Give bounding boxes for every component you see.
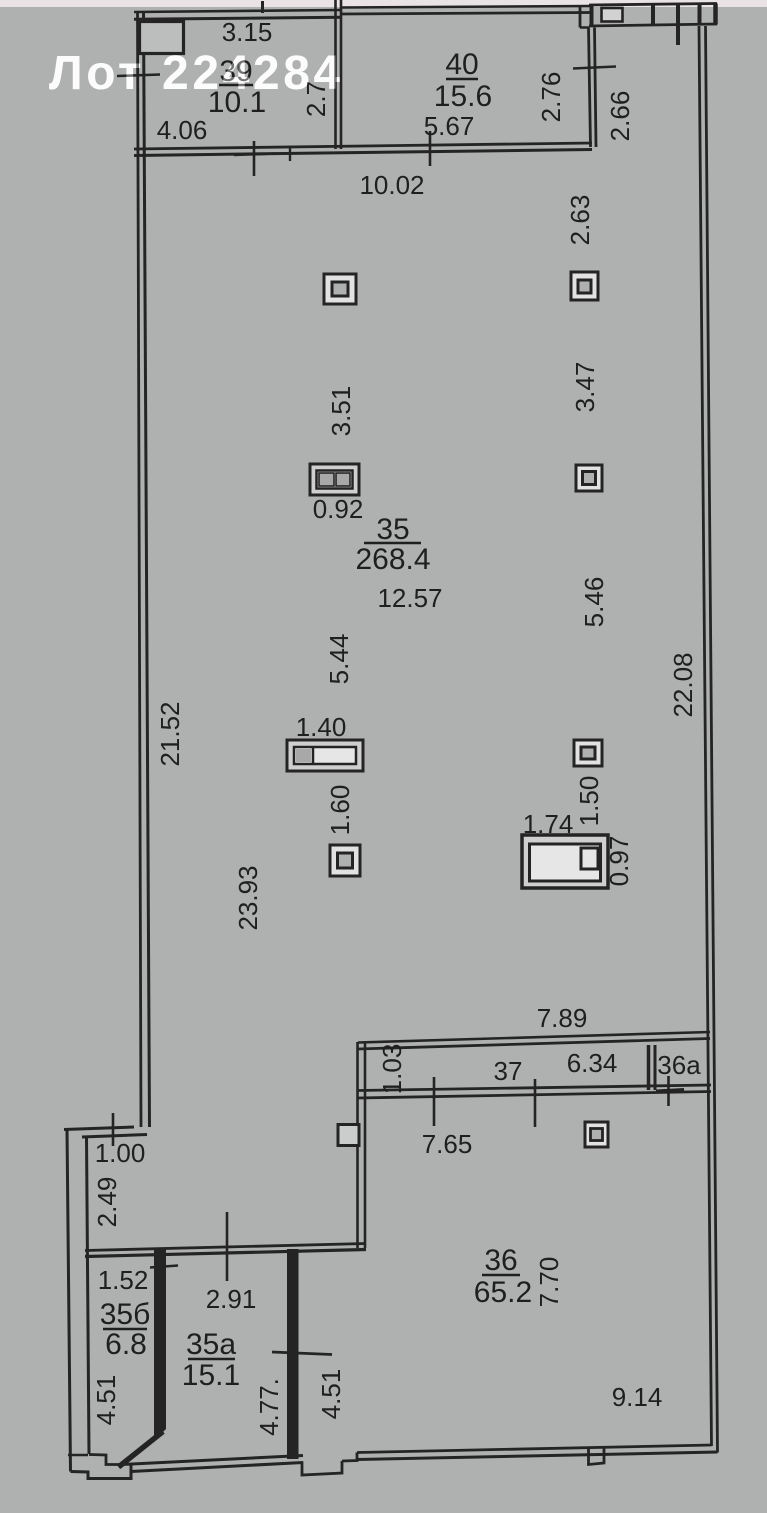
svg-text:2.66: 2.66: [605, 91, 635, 142]
svg-text:4.51: 4.51: [316, 1369, 346, 1420]
svg-text:5.44: 5.44: [324, 634, 354, 685]
svg-text:1.50: 1.50: [574, 776, 604, 827]
svg-text:4.06: 4.06: [157, 115, 208, 145]
svg-text:3.47: 3.47: [570, 362, 600, 413]
svg-text:1.00: 1.00: [95, 1138, 146, 1168]
svg-text:23.93: 23.93: [233, 865, 263, 930]
svg-text:Лот 224284: Лот 224284: [49, 47, 344, 100]
svg-text:3.51: 3.51: [326, 386, 356, 437]
svg-text:268.4: 268.4: [355, 543, 430, 576]
svg-text:37: 37: [494, 1056, 523, 1086]
svg-text:15.1: 15.1: [182, 1359, 240, 1392]
svg-text:35б: 35б: [100, 1298, 151, 1331]
svg-text:4.51: 4.51: [91, 1375, 121, 1426]
svg-text:35а: 35а: [186, 1328, 236, 1361]
svg-text:10.02: 10.02: [359, 170, 424, 200]
svg-text:36: 36: [484, 1244, 517, 1277]
svg-text:6.34: 6.34: [567, 1048, 618, 1078]
svg-text:65.2: 65.2: [474, 1276, 532, 1309]
svg-text:7.65: 7.65: [422, 1129, 473, 1159]
svg-text:22.08: 22.08: [668, 652, 698, 717]
svg-text:5.46: 5.46: [579, 577, 609, 628]
svg-text:1.60: 1.60: [325, 785, 355, 836]
svg-text:2.63: 2.63: [565, 195, 595, 246]
svg-text:15.6: 15.6: [434, 80, 492, 113]
svg-text:5.67: 5.67: [424, 111, 475, 141]
svg-text:2.76: 2.76: [536, 72, 566, 123]
svg-text:6.8: 6.8: [105, 1328, 147, 1361]
svg-text:1.52: 1.52: [98, 1265, 149, 1295]
svg-text:40: 40: [445, 48, 478, 81]
svg-text:7.70: 7.70: [534, 1257, 564, 1308]
svg-text:35: 35: [376, 513, 409, 546]
svg-text:2.91: 2.91: [206, 1284, 257, 1314]
svg-text:36а: 36а: [657, 1050, 701, 1080]
svg-text:1.03: 1.03: [377, 1044, 407, 1095]
svg-text:4.77.: 4.77.: [254, 1378, 284, 1436]
svg-text:0.92: 0.92: [313, 494, 364, 524]
svg-text:21.52: 21.52: [155, 701, 185, 766]
svg-text:9.14: 9.14: [612, 1382, 663, 1412]
svg-text:7.89: 7.89: [537, 1003, 588, 1033]
svg-text:12.57: 12.57: [377, 583, 442, 613]
svg-text:3.15: 3.15: [222, 17, 273, 47]
svg-text:2.49: 2.49: [92, 1177, 122, 1228]
svg-text:1.40: 1.40: [296, 712, 347, 742]
